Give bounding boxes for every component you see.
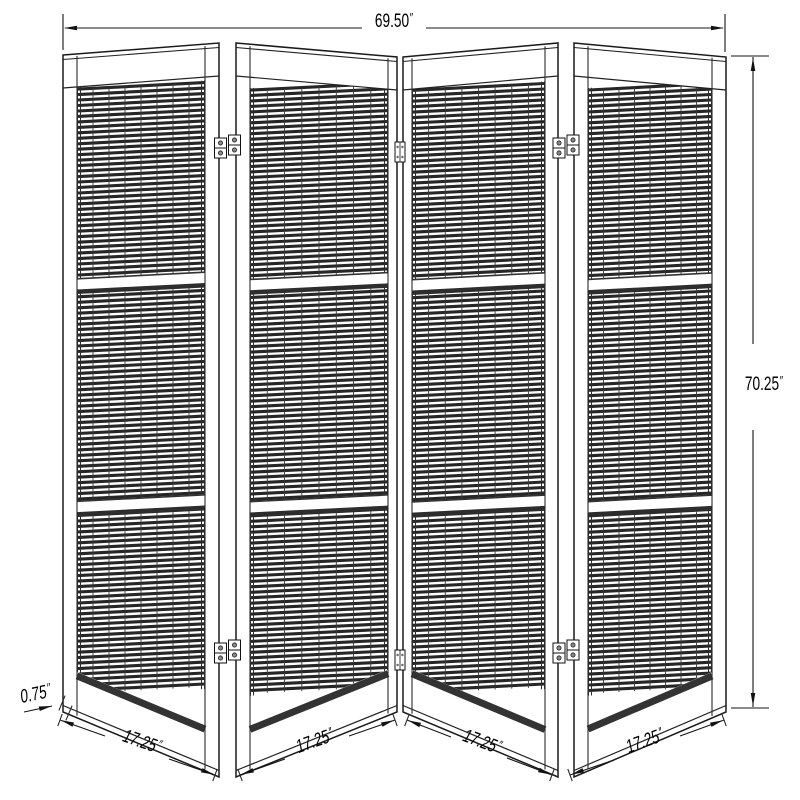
hinge-front-left-top bbox=[215, 135, 241, 158]
room-divider-dimension-drawing: 69.50″ 70.25″ 0.75″ 17.25″ 17.25″ 17.25″… bbox=[0, 0, 800, 800]
dimension-arrow bbox=[751, 58, 756, 71]
hinge-screw bbox=[401, 664, 403, 666]
hinge-center-top bbox=[395, 142, 405, 162]
hinge-screw bbox=[218, 656, 222, 660]
hinge-screw bbox=[232, 643, 236, 647]
hinge-screw bbox=[218, 141, 222, 145]
hinge-screw bbox=[571, 148, 575, 152]
hinge-screw bbox=[571, 643, 575, 647]
dim-overall-height-label: 70.25″ bbox=[745, 373, 783, 395]
dim-value: 0.75 bbox=[20, 680, 48, 707]
hinge-front-right-bottom bbox=[553, 640, 579, 663]
hinge-screw bbox=[218, 646, 222, 650]
dim-overall-width-label: 69.50″ bbox=[375, 10, 413, 32]
panel-4 bbox=[574, 43, 726, 777]
hinge-screw bbox=[401, 146, 403, 148]
hinge-screw bbox=[396, 146, 398, 148]
hinge-screw bbox=[557, 656, 561, 660]
hinge-screw bbox=[571, 653, 575, 657]
dim-unit: ″ bbox=[410, 12, 413, 26]
hinge-screw bbox=[232, 653, 236, 657]
dimension-arrow bbox=[61, 720, 74, 727]
dimension-arrow bbox=[710, 720, 723, 727]
dim-unit: ″ bbox=[780, 375, 783, 389]
hinge-screw bbox=[396, 664, 398, 666]
dimension-arrow bbox=[408, 720, 421, 727]
hinge-front-right-top bbox=[553, 135, 579, 158]
hinge-screw bbox=[401, 654, 403, 656]
dim-value: 69.50 bbox=[375, 10, 409, 32]
panel-2 bbox=[236, 43, 397, 777]
dim-value: 70.25 bbox=[745, 373, 779, 395]
dimension-arrow bbox=[381, 720, 394, 727]
technical-drawing-svg: 69.50″ 70.25″ 0.75″ 17.25″ 17.25″ 17.25″… bbox=[0, 0, 800, 800]
panel-3 bbox=[403, 43, 558, 777]
hinge-screw bbox=[571, 138, 575, 142]
dimension-arrow bbox=[751, 693, 756, 706]
dimension-arrow bbox=[39, 706, 52, 711]
hinge-screw bbox=[232, 138, 236, 142]
hinge-screw bbox=[401, 156, 403, 158]
hinge-screw bbox=[557, 141, 561, 145]
dim-panel-thickness-label: 0.75″ bbox=[20, 680, 52, 708]
dim-unit: ″ bbox=[47, 681, 51, 695]
dimension-arrow bbox=[711, 26, 724, 31]
hinge-screw bbox=[396, 156, 398, 158]
panel-1 bbox=[63, 43, 219, 777]
hinge-center-bottom bbox=[395, 650, 405, 670]
hinge-screw bbox=[557, 646, 561, 650]
hinge-screw bbox=[557, 151, 561, 155]
hinge-screw bbox=[396, 654, 398, 656]
hinge-screw bbox=[218, 151, 222, 155]
hinge-screw bbox=[232, 148, 236, 152]
dimension-arrow bbox=[64, 26, 77, 31]
hinge-front-left-bottom bbox=[215, 640, 241, 663]
